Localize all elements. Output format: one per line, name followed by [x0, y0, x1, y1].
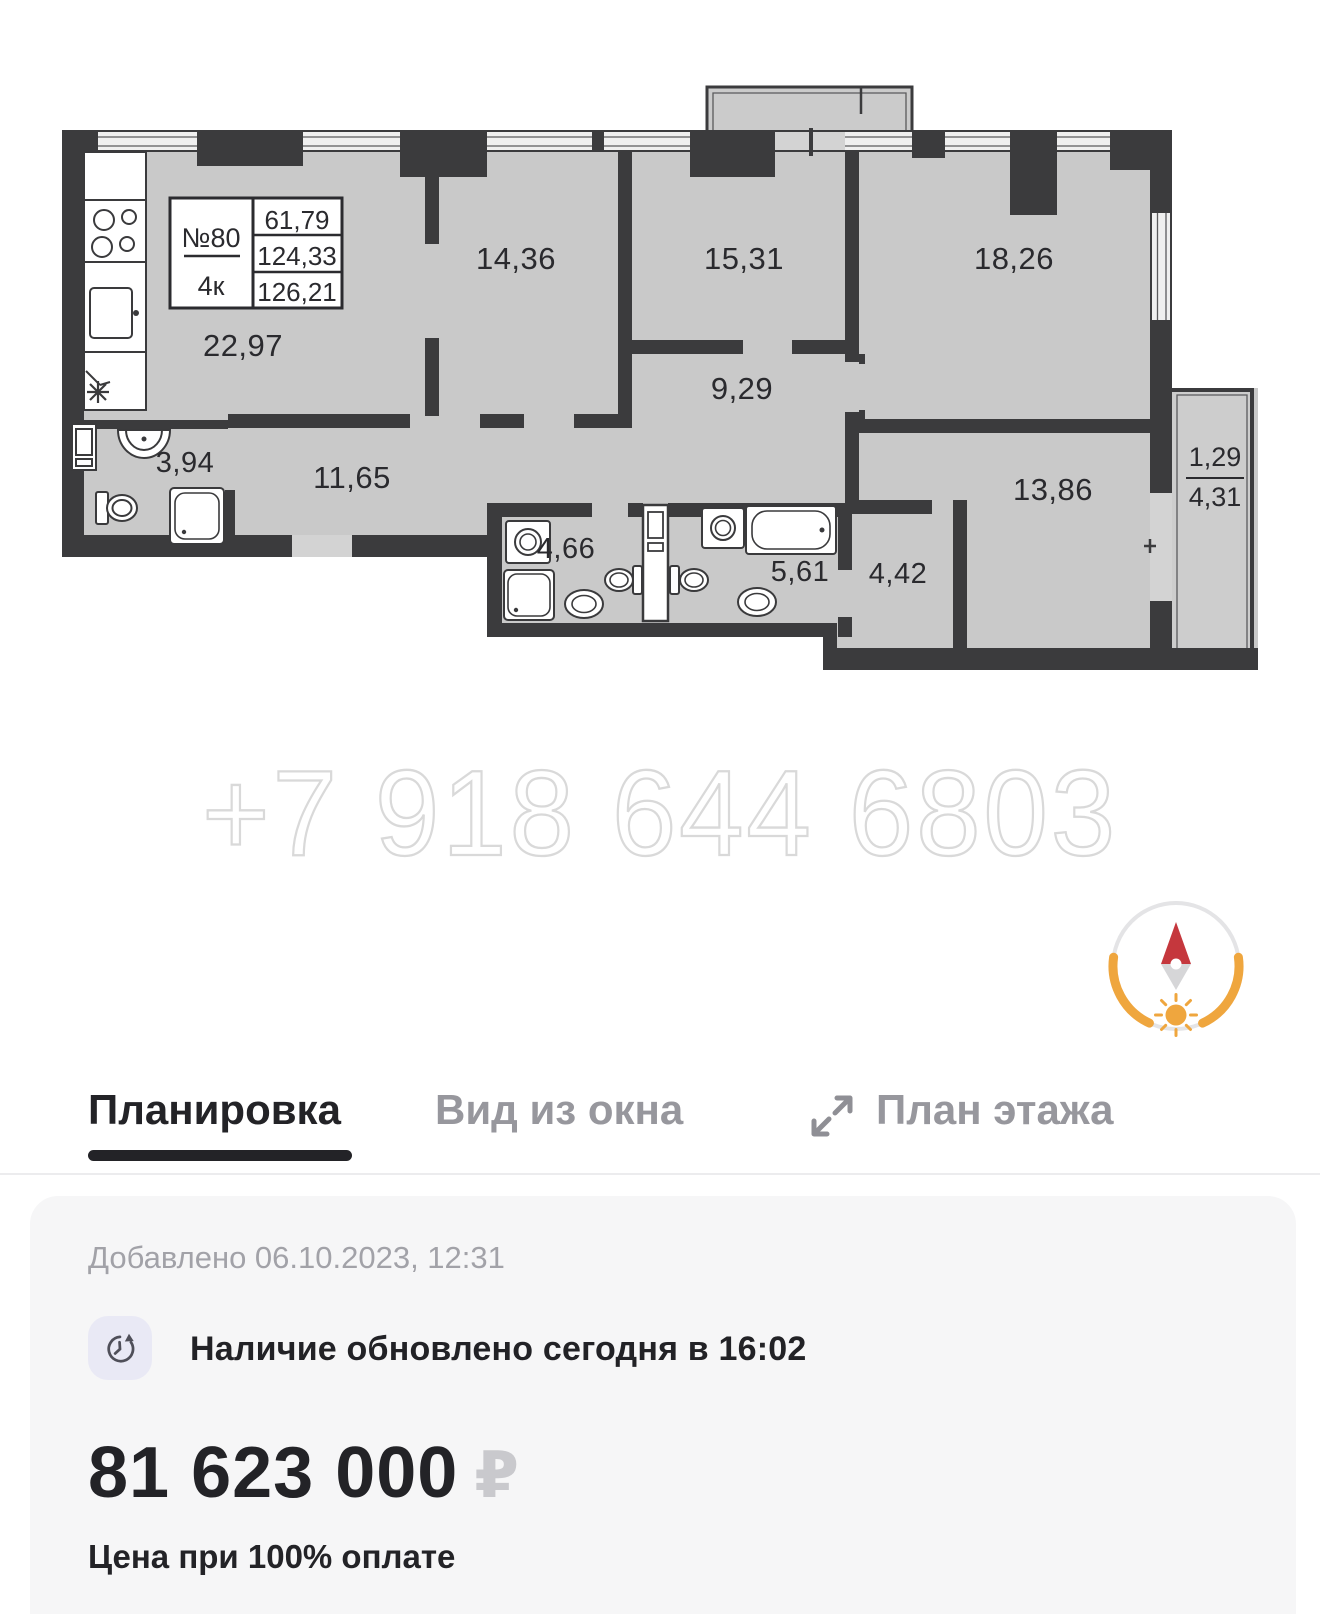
phone-watermark: +7 918 644 6803	[33, 752, 1287, 874]
room-area-label: 5,61	[771, 556, 829, 588]
ventilation-shaft-icon	[643, 505, 668, 621]
tab-plan-etazha[interactable]: План этажа	[876, 1086, 1113, 1134]
kitchen-counter-icon	[84, 152, 146, 410]
balcony-area: 4,31	[1189, 482, 1242, 512]
unit-total-area: 126,21	[257, 277, 337, 307]
compass-pivot	[1171, 959, 1182, 970]
unit-living-area: 61,79	[264, 205, 329, 235]
unit-area: 124,33	[257, 241, 337, 271]
room-area-label: 18,26	[974, 241, 1054, 276]
room-area-label: 3,94	[156, 447, 214, 479]
compass	[1101, 891, 1251, 1041]
room-area-label: 4,66	[537, 533, 595, 565]
fridge-snowflake-icon	[87, 381, 109, 403]
active-tab-underline	[88, 1150, 352, 1161]
date-added-label: Добавлено 06.10.2023, 12:31	[88, 1240, 505, 1276]
balcony-right-area	[1172, 390, 1254, 648]
room-area-label: 15,31	[704, 241, 784, 276]
availability-clock-icon	[88, 1316, 152, 1380]
room-area-label: 14,36	[476, 241, 556, 276]
price-row: 81 623 000₽	[88, 1432, 519, 1514]
unit-number: №80	[182, 223, 241, 253]
unit-rooms: 4к	[198, 271, 225, 301]
tab-vid-iz-okna[interactable]: Вид из окна	[435, 1086, 683, 1134]
expand-icon[interactable]	[806, 1090, 858, 1142]
floor-plan: №80 4к 61,79 124,33 126,21 22,97 14,36 1…	[0, 0, 1320, 700]
price-value: 81 623 000	[88, 1433, 458, 1513]
ruble-currency-icon: ₽	[474, 1439, 519, 1511]
price-note-label: Цена при 100% оплате	[88, 1538, 455, 1576]
tabs-divider	[0, 1173, 1320, 1175]
room-area-label: 22,97	[203, 328, 283, 363]
availability-status-label: Наличие обновлено сегодня в 16:02	[190, 1330, 806, 1369]
balcony-reduced-area: 1,29	[1189, 442, 1242, 472]
room-area-label: 4,42	[869, 558, 927, 590]
sun-icon	[1156, 995, 1197, 1036]
balcony-top	[707, 87, 912, 132]
room-area-label: 11,65	[313, 460, 391, 495]
balcony-area-fraction: 1,29 4,31	[1186, 442, 1244, 512]
tab-planirovka[interactable]: Планировка	[88, 1086, 341, 1134]
unit-info-box: №80 4к 61,79 124,33 126,21	[170, 198, 342, 308]
room-area-label: 13,86	[1013, 472, 1093, 507]
room-area-label: 9,29	[711, 371, 773, 406]
